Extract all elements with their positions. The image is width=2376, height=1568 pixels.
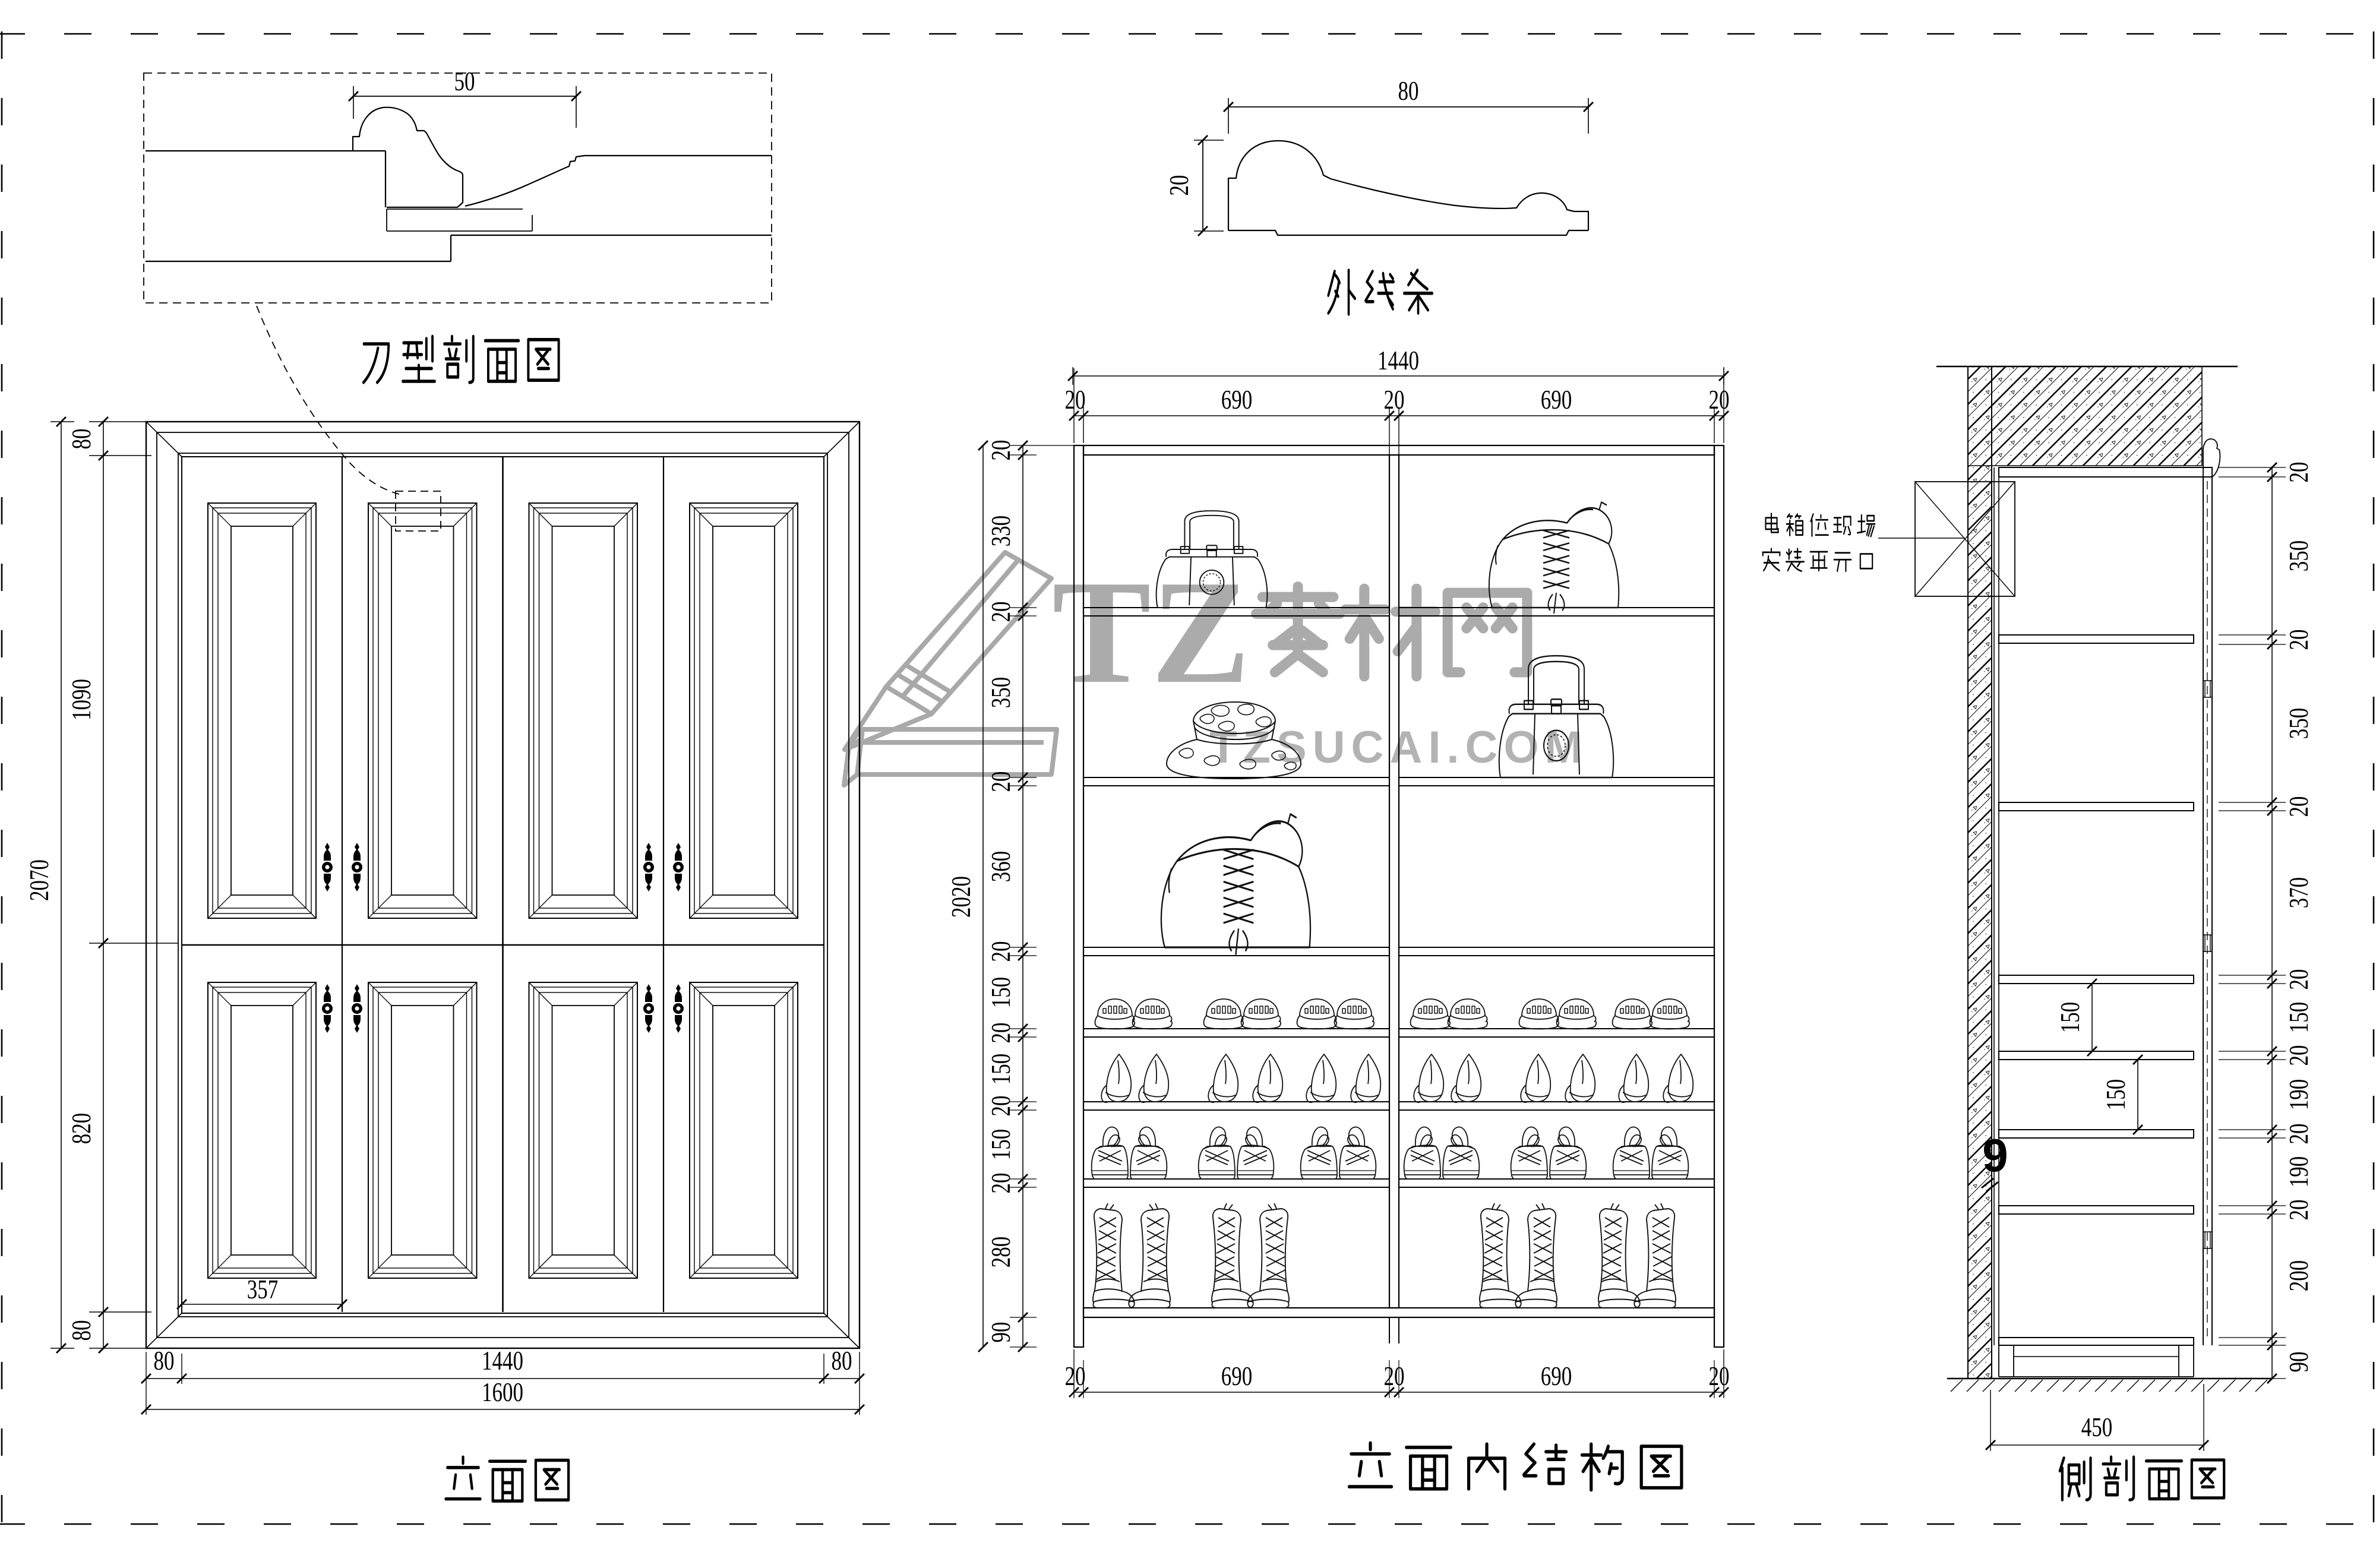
svg-text:350: 350 bbox=[985, 677, 1016, 709]
svg-text:20: 20 bbox=[1709, 1361, 1730, 1391]
svg-text:150: 150 bbox=[985, 977, 1016, 1009]
svg-text:690: 690 bbox=[1541, 1361, 1572, 1391]
svg-text:690: 690 bbox=[1541, 384, 1572, 415]
svg-text:20: 20 bbox=[985, 772, 1016, 792]
svg-text:20: 20 bbox=[985, 941, 1016, 962]
svg-text:2020: 2020 bbox=[946, 876, 976, 918]
svg-text:20: 20 bbox=[1164, 175, 1194, 196]
svg-text:20: 20 bbox=[2283, 796, 2314, 817]
svg-text:150: 150 bbox=[2055, 1002, 2085, 1033]
svg-text:80: 80 bbox=[154, 1345, 175, 1376]
svg-text:350: 350 bbox=[2283, 708, 2314, 739]
svg-text:50: 50 bbox=[454, 66, 475, 96]
svg-text:280: 280 bbox=[985, 1237, 1016, 1268]
svg-text:150: 150 bbox=[985, 1129, 1016, 1161]
svg-text:20: 20 bbox=[985, 1023, 1016, 1044]
svg-text:20: 20 bbox=[985, 1096, 1016, 1117]
svg-text:80: 80 bbox=[832, 1345, 852, 1376]
svg-text:20: 20 bbox=[2283, 969, 2314, 990]
svg-text:690: 690 bbox=[1221, 1361, 1253, 1391]
svg-text:20: 20 bbox=[2283, 630, 2314, 650]
svg-text:1440: 1440 bbox=[482, 1345, 523, 1376]
svg-text:20: 20 bbox=[985, 440, 1016, 461]
svg-text:20: 20 bbox=[2283, 1045, 2314, 1066]
svg-text:190: 190 bbox=[2283, 1156, 2314, 1188]
svg-text:150: 150 bbox=[2100, 1079, 2131, 1111]
svg-text:20: 20 bbox=[1065, 1361, 1086, 1391]
svg-text:190: 190 bbox=[2283, 1079, 2314, 1111]
svg-text:20: 20 bbox=[985, 602, 1016, 622]
svg-text:20: 20 bbox=[985, 1173, 1016, 1194]
svg-text:1090: 1090 bbox=[66, 679, 96, 720]
svg-text:820: 820 bbox=[66, 1113, 96, 1145]
svg-text:9: 9 bbox=[1982, 1129, 2008, 1181]
svg-text:1440: 1440 bbox=[1377, 345, 1419, 375]
svg-text:357: 357 bbox=[247, 1274, 279, 1304]
svg-text:350: 350 bbox=[2283, 540, 2314, 572]
svg-text:20: 20 bbox=[1384, 1361, 1405, 1391]
svg-text:1600: 1600 bbox=[482, 1377, 523, 1407]
svg-text:2070: 2070 bbox=[24, 859, 54, 901]
svg-text:690: 690 bbox=[1221, 384, 1253, 415]
svg-text:20: 20 bbox=[2283, 462, 2314, 483]
svg-text:150: 150 bbox=[2283, 1002, 2314, 1033]
svg-text:330: 330 bbox=[985, 516, 1016, 547]
svg-text:80: 80 bbox=[66, 429, 96, 450]
svg-text:90: 90 bbox=[985, 1322, 1016, 1343]
svg-text:90: 90 bbox=[2283, 1352, 2314, 1373]
svg-text:450: 450 bbox=[2081, 1412, 2113, 1442]
svg-text:360: 360 bbox=[985, 851, 1016, 883]
svg-text:20: 20 bbox=[1709, 384, 1730, 415]
svg-text:20: 20 bbox=[1384, 384, 1405, 415]
svg-text:20: 20 bbox=[2283, 1124, 2314, 1145]
svg-text:370: 370 bbox=[2283, 877, 2314, 909]
svg-text:80: 80 bbox=[66, 1320, 96, 1341]
svg-text:200: 200 bbox=[2283, 1260, 2314, 1292]
svg-text:20: 20 bbox=[2283, 1200, 2314, 1221]
svg-text:20: 20 bbox=[1065, 384, 1086, 415]
svg-text:80: 80 bbox=[1398, 75, 1419, 106]
svg-text:150: 150 bbox=[985, 1054, 1016, 1085]
